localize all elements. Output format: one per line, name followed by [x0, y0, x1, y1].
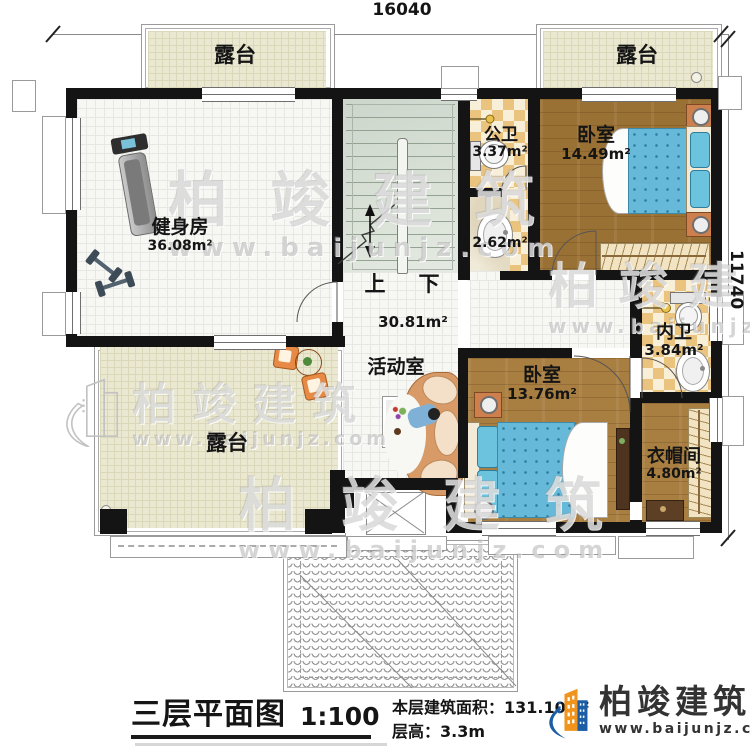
wall-segment: [446, 522, 482, 533]
wall-segment: [711, 442, 722, 533]
wall-segment: [338, 478, 456, 490]
window-sill: [722, 396, 744, 446]
wall-segment: [556, 522, 632, 533]
floor-height-value: 3.3m: [440, 722, 485, 741]
brand-site: www.baijunjz.com: [599, 721, 750, 737]
bed: [600, 104, 712, 236]
stair-label-down: 下: [416, 273, 442, 295]
dumbbells: [84, 248, 138, 300]
wall-segment: [66, 88, 77, 118]
window-sill: [42, 116, 66, 214]
window: [646, 521, 700, 536]
room-area-gym: 36.08m²: [138, 239, 222, 254]
pillow: [690, 132, 710, 168]
table-item: [394, 428, 401, 435]
title-underline: [131, 735, 371, 739]
window-ledge: [618, 536, 694, 559]
top-dimension-label: 16040: [362, 2, 442, 20]
patio-plant: [303, 357, 312, 366]
room-area-cloakroom: 4.80m²: [642, 467, 706, 482]
terrace-column: [305, 509, 332, 534]
floor-plan-canvas: 16040 11740: [0, 0, 750, 753]
window-sill: [12, 80, 36, 112]
floor-height-label: 层高：: [392, 722, 440, 741]
window-ledge: [488, 536, 616, 555]
room-label-bedroom-ne: 卧室: [564, 126, 628, 146]
terrace-column: [100, 509, 127, 534]
lamp: [692, 216, 710, 234]
wall-segment: [700, 522, 722, 533]
roof-inner-outline: [300, 556, 502, 678]
room-label-activity: 活动室: [358, 358, 434, 378]
wall-segment: [332, 88, 343, 282]
dresser-knob: [660, 506, 666, 512]
room-label-public-bath: 公卫: [472, 127, 530, 145]
wall-segment: [711, 341, 722, 398]
window: [482, 521, 556, 536]
sliding-door: [214, 335, 286, 350]
room-area-activity: 30.81m²: [376, 315, 450, 331]
plan-scale: 1:100: [300, 704, 380, 730]
wall-segment: [66, 336, 214, 347]
room-area-bedroom-s: 13.76m²: [502, 387, 582, 403]
dumbbell: [94, 271, 135, 298]
lamp: [474, 500, 494, 520]
bed: [464, 392, 610, 522]
room-area-public-bath: 3.37m²: [468, 145, 532, 160]
bed-mattress: [628, 128, 692, 214]
plan-title: 三层平面图: [131, 699, 286, 731]
brand-logo-icon: [543, 680, 589, 742]
brand-logo: 柏竣建筑 www.baijunjz.com: [543, 680, 750, 742]
wall-segment: [468, 188, 502, 197]
terrace-railing-lower: [110, 536, 347, 558]
sliding-door: [582, 87, 676, 102]
brand-name: 柏竣建筑: [599, 685, 750, 718]
porch-step: [347, 536, 447, 551]
room-label-terrace-tr: 露台: [562, 44, 712, 66]
wall-segment: [458, 88, 470, 280]
stair-label-up: 上: [362, 273, 388, 295]
window-sill: [441, 66, 479, 89]
wall-segment: [640, 392, 714, 403]
floor-height-text: 层高：3.3m: [392, 724, 485, 741]
wall-segment: [332, 322, 343, 347]
tv-cabinet-dot: [619, 438, 625, 444]
corridor-floor: [470, 280, 630, 348]
terrace-drain: [691, 72, 702, 83]
flowers: [390, 404, 408, 422]
window: [64, 118, 81, 210]
wall-segment: [458, 348, 572, 358]
wall-segment: [596, 270, 714, 280]
title-underline-shadow: [135, 743, 387, 746]
room-label-cloakroom: 衣帽间: [636, 448, 712, 467]
lamp: [692, 108, 710, 126]
wardrobe: [600, 243, 710, 271]
pillow: [477, 426, 499, 468]
bed-blanket: [562, 422, 608, 518]
terrace-railing-dash: [118, 545, 337, 547]
window: [64, 292, 81, 334]
sliding-door: [202, 87, 295, 102]
right-dimension-label: 11740: [726, 250, 744, 309]
lamp: [480, 396, 498, 414]
stair-rail: [397, 138, 408, 274]
wall-segment: [66, 88, 202, 99]
wardrobe-rod: [602, 255, 706, 257]
person-head: [428, 408, 440, 420]
room-label-terrace-tl: 露台: [160, 44, 310, 66]
pillar-box: [366, 492, 426, 535]
wall-segment: [630, 522, 646, 533]
room-area-bedroom-ne: 14.49m²: [556, 147, 636, 163]
window-sill: [42, 292, 66, 336]
room-label-bedroom-s: 卧室: [508, 366, 576, 386]
window: [441, 88, 477, 101]
pillow: [690, 170, 710, 208]
room-area-inner-bath: 3.84m²: [638, 343, 710, 359]
room-label-gym: 健身房: [138, 218, 222, 238]
wall-segment: [330, 470, 345, 533]
floor-area-label: 本层建筑面积：: [392, 698, 504, 717]
room-area-vestibule: 2.62m²: [468, 236, 532, 251]
room-label-terrace-bl: 露台: [152, 432, 302, 454]
wall-segment: [66, 210, 77, 292]
wall-segment: [528, 88, 540, 280]
wall-segment: [458, 348, 468, 478]
wall-segment: [711, 88, 722, 297]
wall-segment: [528, 270, 552, 280]
vestibule-opening: [468, 271, 500, 281]
terrace-ac-platform: [718, 76, 742, 110]
